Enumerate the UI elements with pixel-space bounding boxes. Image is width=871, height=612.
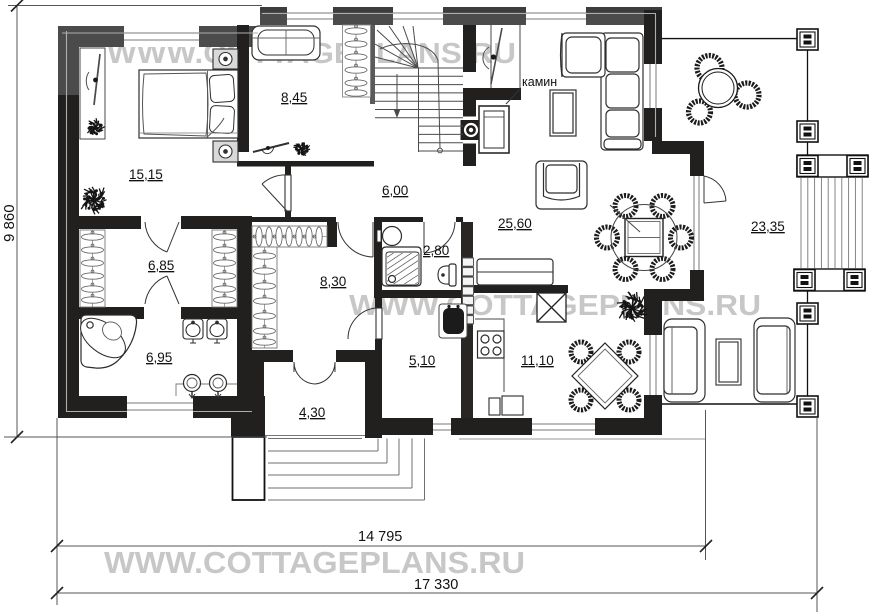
svg-text:14 795: 14 795 (358, 529, 402, 545)
svg-text:23,35: 23,35 (751, 219, 785, 234)
svg-text:6,85: 6,85 (148, 258, 174, 273)
svg-text:8,45: 8,45 (281, 90, 307, 105)
svg-text:2,80: 2,80 (423, 243, 449, 258)
svg-text:камин: камин (522, 75, 557, 89)
svg-text:17 330: 17 330 (414, 577, 458, 593)
svg-text:9 860: 9 860 (1, 204, 18, 242)
svg-text:8,30: 8,30 (320, 274, 346, 289)
svg-text:5,10: 5,10 (409, 353, 435, 368)
svg-text:15,15: 15,15 (129, 167, 163, 182)
svg-text:WWW.COTTAGEPLANS.RU: WWW.COTTAGEPLANS.RU (104, 545, 525, 580)
svg-text:6,00: 6,00 (382, 183, 408, 198)
svg-text:6,95: 6,95 (146, 350, 172, 365)
svg-text:4,30: 4,30 (299, 405, 325, 420)
svg-text:11,10: 11,10 (521, 353, 554, 368)
svg-text:25,60: 25,60 (498, 216, 532, 231)
